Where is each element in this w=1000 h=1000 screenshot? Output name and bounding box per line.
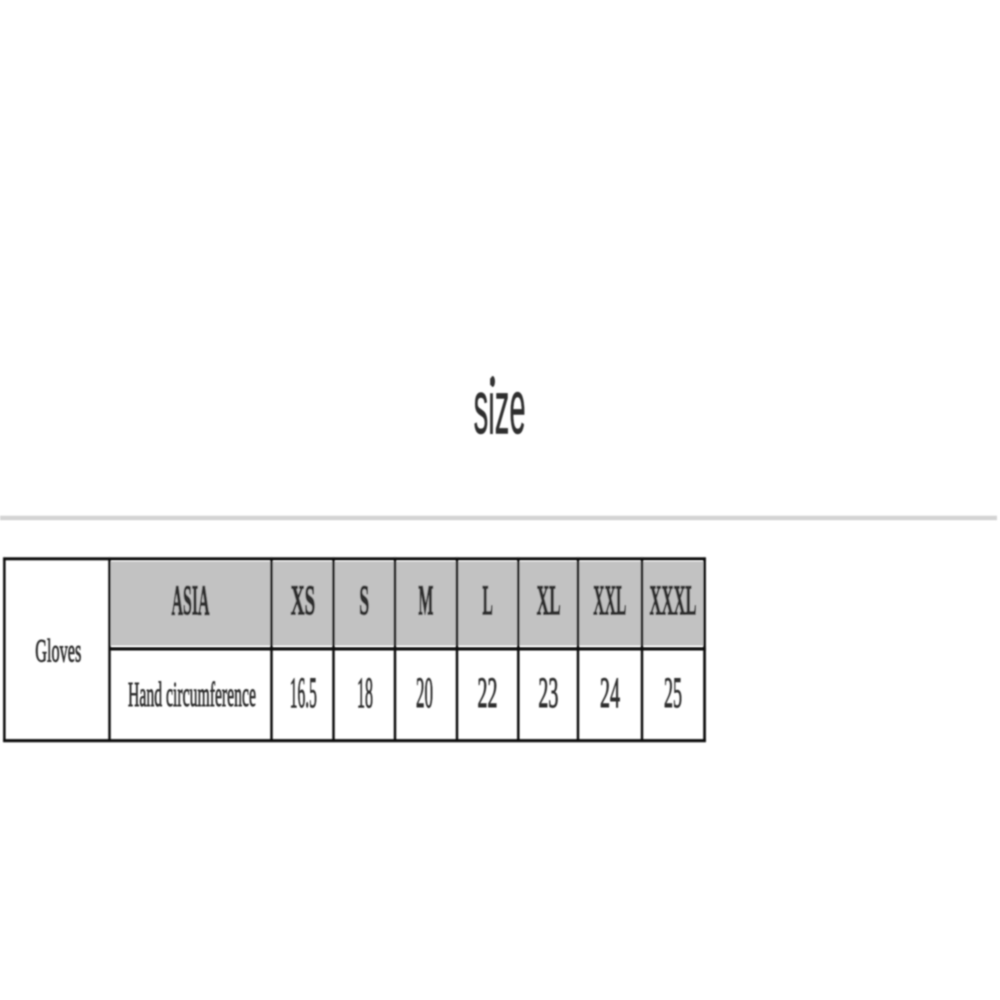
svg-text:M: M xyxy=(418,579,433,625)
svg-text:24: 24 xyxy=(600,670,620,717)
svg-text:20: 20 xyxy=(416,670,433,717)
svg-text:XS: XS xyxy=(291,579,316,625)
svg-text:XXL: XXL xyxy=(593,579,626,625)
svg-text:Gloves: Gloves xyxy=(35,634,81,670)
svg-text:XXXL: XXXL xyxy=(650,579,697,625)
svg-text:22: 22 xyxy=(478,670,498,717)
svg-text:25: 25 xyxy=(664,670,682,717)
svg-text:18: 18 xyxy=(357,670,373,717)
svg-text:Hand circumference: Hand circumference xyxy=(128,675,256,714)
svg-text:23: 23 xyxy=(538,670,558,717)
svg-text:16.5: 16.5 xyxy=(290,670,317,717)
svg-text:ASIA: ASIA xyxy=(172,579,210,625)
svg-text:size: size xyxy=(474,366,526,451)
svg-text:L: L xyxy=(482,579,493,625)
svg-text:XL: XL xyxy=(537,579,561,625)
svg-text:S: S xyxy=(359,579,369,625)
